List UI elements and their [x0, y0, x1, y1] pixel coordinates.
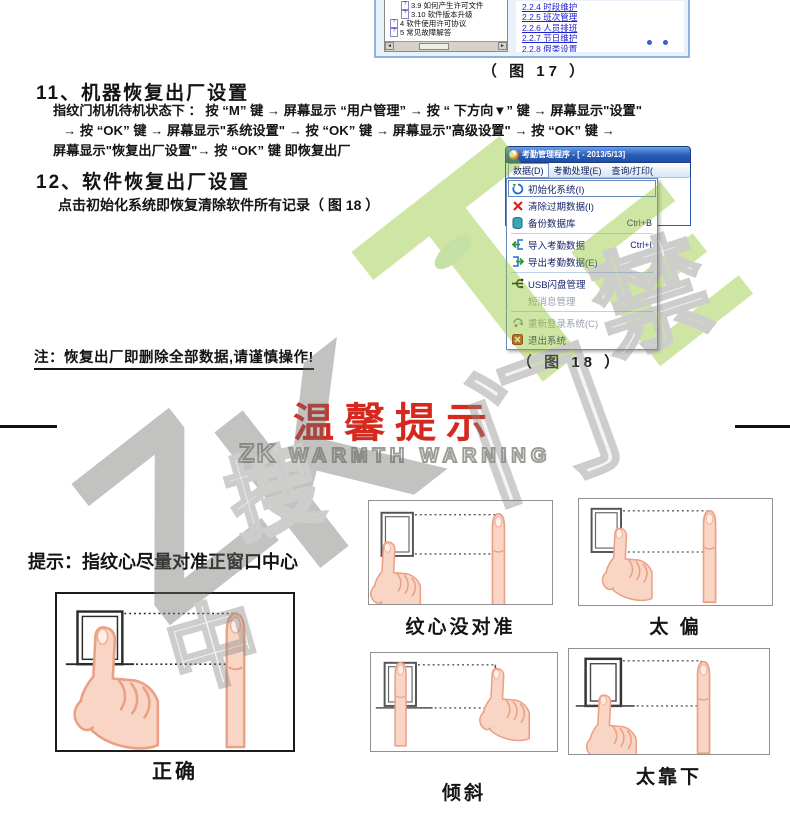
correct-finger-illustration [57, 594, 293, 750]
section11-line2: → 按 “OK” 键 → 屏幕显示"系统设置" → 按 “OK” 键 → 屏幕显… [53, 121, 783, 141]
not-aligned-finger-illustration [369, 501, 552, 604]
watermark-leaf [429, 229, 477, 275]
tree-item-label: 3.9 如何产生许可文件 [411, 1, 484, 10]
menuitem-relogin-system[interactable]: 重新登录系统(C) [508, 314, 656, 331]
zk-brand-text: ZK [239, 438, 278, 468]
window-titlebar: 考勤管理程序 - [ - 2013/5/13] [505, 146, 691, 163]
figure17-link-list: 2.2.4 时段维护 2.2.5 班次管理 2.2.6 人员排班 2.2.7 节… [516, 1, 684, 52]
import-icon [511, 239, 524, 251]
help-link[interactable]: 2.2.7 节日维护 [522, 33, 684, 43]
menuitem-clear-expired-data[interactable]: 清除过期数据(I) [508, 197, 656, 214]
figure18-caption: （ 图 18 ） [490, 351, 650, 372]
menuitem-label: USB闪盘管理 [528, 277, 586, 291]
fingerprint-tip: 提示：指纹心尽量对准正窗口中心 [28, 548, 298, 574]
menu-separator [511, 233, 653, 234]
database-icon [511, 217, 524, 229]
menuitem-label: 备份数据库 [528, 216, 576, 230]
panel-correct-illustration [55, 592, 295, 752]
menuitem-sms-management[interactable]: 短消息管理 [508, 292, 656, 309]
menuitem-label: 清除过期数据(I) [528, 199, 594, 213]
menu-data[interactable]: 数据(D) [508, 163, 549, 178]
menuitem-import-attendance-data[interactable]: 导入考勤数据 Ctrl+I [508, 236, 656, 253]
too-low-finger-illustration [569, 649, 769, 754]
section12-body: 点击初始化系统即恢复清除软件所有记录（ 图 18 ） [58, 195, 379, 215]
warmth-warning-text: WARMTH WARNING [289, 445, 551, 467]
factory-reset-note: 注：恢复出厂即删除全部数据,请谨慎操作! [34, 346, 314, 370]
window-title: 考勤管理程序 - [ - 2013/5/13] [522, 149, 625, 160]
menuitem-label: 重新登录系统(C) [528, 316, 598, 330]
menu-bar: 数据(D) 考勤处理(E) 查询/打印( [505, 163, 691, 178]
tree-item[interactable]: ? 4 软件使用许可协议 [385, 19, 507, 28]
horizontal-scrollbar[interactable]: ◄ ► [385, 41, 507, 51]
tree-item[interactable]: ? 5 常见故障解答 [385, 28, 507, 37]
panel-too-side-illustration [578, 498, 773, 606]
menuitem-label: 导出考勤数据(E) [528, 255, 598, 269]
blank-icon [511, 295, 524, 307]
help-link[interactable]: 2.2.4 时段维护 [522, 2, 684, 12]
menu-query-print[interactable]: 查询/打印( [607, 163, 659, 178]
help-link[interactable]: 2.2.6 人员排班 [522, 23, 684, 33]
menuitem-backup-database[interactable]: 备份数据库 Ctrl+B [508, 214, 656, 231]
tilted-finger-illustration [371, 653, 557, 751]
manual-page: ? 3.9 如何产生许可文件 ? 3.10 软件版本升级 ? 4 软件使用许可协… [0, 0, 790, 828]
panel-tilted-illustration [370, 652, 558, 752]
figure17-help-window: ? 3.9 如何产生许可文件 ? 3.10 软件版本升级 ? 4 软件使用许可协… [374, 0, 690, 58]
exit-icon [511, 334, 524, 346]
panel-label-too-side: 太 偏 [578, 612, 773, 639]
scrollbar-thumb[interactable] [419, 43, 449, 50]
shortcut: Ctrl+B [627, 218, 652, 228]
warm-warning-subtitle: ZKWARMTH WARNING [0, 438, 790, 469]
usb-icon [511, 278, 524, 290]
relogin-icon [511, 317, 524, 329]
menu-separator [511, 272, 653, 273]
help-link[interactable]: 2.2.8 假类设置 [522, 44, 684, 52]
too-side-finger-illustration [579, 499, 772, 605]
help-page-icon: ? [390, 19, 398, 28]
initialize-icon [511, 183, 524, 195]
scroll-right-button[interactable]: ► [498, 42, 507, 50]
panel-label-correct: 正确 [55, 755, 295, 784]
tree-item-label: 3.10 软件版本升级 [411, 10, 473, 19]
tree-item-label: 5 常见故障解答 [400, 28, 451, 37]
app-icon [509, 150, 519, 160]
panel-label-not-aligned: 纹心没对准 [368, 612, 553, 639]
tree-item[interactable]: ? 3.10 软件版本升级 [385, 10, 507, 19]
figure18-attendance-window: 考勤管理程序 - [ - 2013/5/13] 数据(D) 考勤处理(E) 查询… [505, 146, 691, 352]
menuitem-label: 短消息管理 [528, 294, 576, 308]
tree-item[interactable]: ? 3.9 如何产生许可文件 [385, 1, 507, 10]
export-icon [511, 256, 524, 268]
menuitem-initialize-system[interactable]: 初始化系统(I) [508, 180, 656, 197]
red-x-icon [511, 200, 524, 212]
menu-attendance[interactable]: 考勤处理(E) [549, 163, 607, 178]
shortcut: Ctrl+I [630, 240, 652, 250]
data-dropdown-menu: 初始化系统(I) 清除过期数据(I) 备份数据库 Ctrl+B [506, 178, 658, 350]
help-page-icon: ? [390, 28, 398, 37]
help-link[interactable]: 2.2.5 班次管理 [522, 12, 684, 22]
scroll-left-button[interactable]: ◄ [385, 42, 394, 50]
panel-label-tilted: 倾斜 [370, 778, 558, 805]
panel-label-too-low: 太靠下 [568, 762, 770, 789]
menuitem-label: 初始化系统(I) [528, 182, 584, 196]
panel-not-aligned-illustration [368, 500, 553, 605]
decorative-dot [663, 40, 668, 45]
menuitem-export-attendance-data[interactable]: 导出考勤数据(E) [508, 253, 656, 270]
menuitem-label: 导入考勤数据 [528, 238, 585, 252]
menuitem-label: 退出系统 [528, 333, 566, 347]
figure17-caption: （ 图 17 ） [455, 60, 615, 81]
figure17-toc-tree: ? 3.9 如何产生许可文件 ? 3.10 软件版本升级 ? 4 软件使用许可协… [384, 0, 508, 52]
menuitem-exit-system[interactable]: 退出系统 [508, 331, 656, 348]
tree-item-label: 4 软件使用许可协议 [400, 19, 466, 28]
help-page-icon: ? [401, 1, 409, 10]
help-page-icon: ? [401, 10, 409, 19]
decorative-dot [647, 40, 652, 45]
section11-line1: 指纹门机机待机状态下 ： 按 “M” 键 → 屏幕显示 “用户管理” → 按 “… [53, 101, 783, 121]
section12-title: 12、软件恢复出厂设置 [36, 167, 250, 194]
panel-too-low-illustration [568, 648, 770, 755]
menu-separator [511, 311, 653, 312]
menuitem-usb-flash-management[interactable]: USB闪盘管理 [508, 275, 656, 292]
